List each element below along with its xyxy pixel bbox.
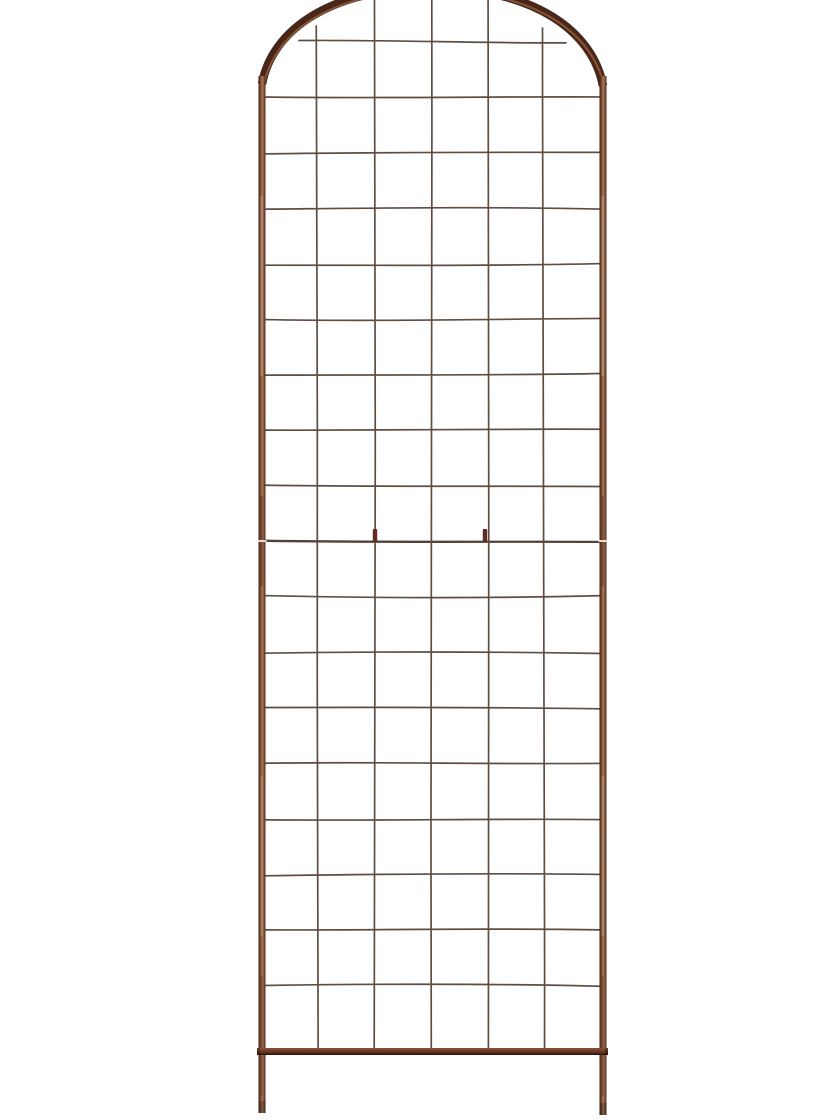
- horizontal-wire: [262, 374, 603, 376]
- vertical-wire: [488, 0, 489, 1049]
- horizontal-wire: [262, 984, 603, 986]
- horizontal-wire: [262, 707, 603, 709]
- rust-streak: [261, 196, 263, 376]
- rust-streak: [602, 196, 604, 376]
- rust-streak: [602, 976, 604, 1096]
- horizontal-wire: [262, 429, 603, 430]
- bottom-bar-shadow-edge: [257, 1054, 608, 1056]
- ground-stake-tip: [600, 1103, 607, 1115]
- horizontal-wire: [262, 652, 603, 654]
- vertical-wire: [316, 26, 318, 1049]
- panel-joint-clip: [483, 529, 487, 542]
- vertical-wire: [431, 0, 432, 1049]
- bottom-bar-end-cap: [257, 1048, 260, 1055]
- panel-joint-clips: [373, 529, 487, 542]
- vertical-wire: [374, 0, 375, 1049]
- rust-streak: [261, 776, 263, 936]
- vertical-wire: [542, 28, 544, 1049]
- product-photo: [0, 0, 840, 1120]
- horizontal-wire: [262, 929, 603, 930]
- trellis-illustration: [0, 0, 840, 1120]
- horizontal-wire: [262, 763, 603, 764]
- grid-wires: [262, 0, 603, 1049]
- panel-joint-seam: [258, 540, 267, 542]
- horizontal-wire: [262, 485, 603, 486]
- panel-joint-seam: [599, 540, 608, 542]
- horizontal-wire: [262, 596, 603, 598]
- bottom-bar-end-cap: [605, 1048, 608, 1055]
- rust-streak: [602, 776, 604, 936]
- ground-stake-tip: [259, 1101, 266, 1113]
- horizontal-wire: [262, 874, 603, 876]
- panel-joint-clip: [373, 529, 377, 542]
- rust-streak: [261, 976, 263, 1096]
- panel-joint-wire: [262, 541, 603, 542]
- horizontal-wire: [262, 819, 603, 820]
